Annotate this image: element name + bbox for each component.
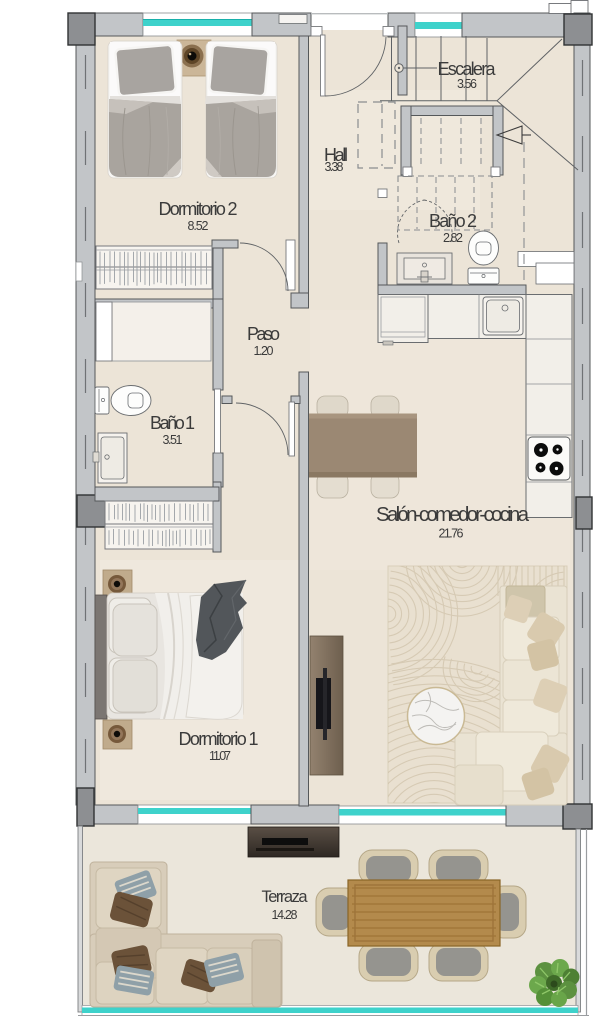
svg-text:1.20: 1.20 — [254, 344, 274, 358]
svg-text:Escalera: Escalera — [438, 59, 497, 79]
svg-text:Terraza: Terraza — [262, 888, 309, 906]
svg-text:14.28: 14.28 — [272, 908, 298, 922]
svg-text:3.56: 3.56 — [457, 77, 477, 91]
svg-text:21.76: 21.76 — [439, 527, 464, 541]
svg-text:3.51: 3.51 — [163, 433, 183, 447]
svg-text:Paso: Paso — [247, 324, 280, 344]
svg-text:Baño 1: Baño 1 — [150, 413, 195, 433]
svg-text:Dormitorio 1: Dormitorio 1 — [179, 729, 259, 749]
svg-text:8.52: 8.52 — [188, 219, 209, 233]
svg-text:3.38: 3.38 — [325, 160, 344, 174]
svg-text:Baño 2: Baño 2 — [429, 211, 477, 231]
svg-text:Dormitorio 2: Dormitorio 2 — [159, 199, 238, 219]
svg-text:11.07: 11.07 — [209, 749, 231, 763]
svg-text:Salón-comedor-cocina: Salón-comedor-cocina — [376, 503, 530, 526]
svg-text:2.82: 2.82 — [443, 231, 463, 245]
